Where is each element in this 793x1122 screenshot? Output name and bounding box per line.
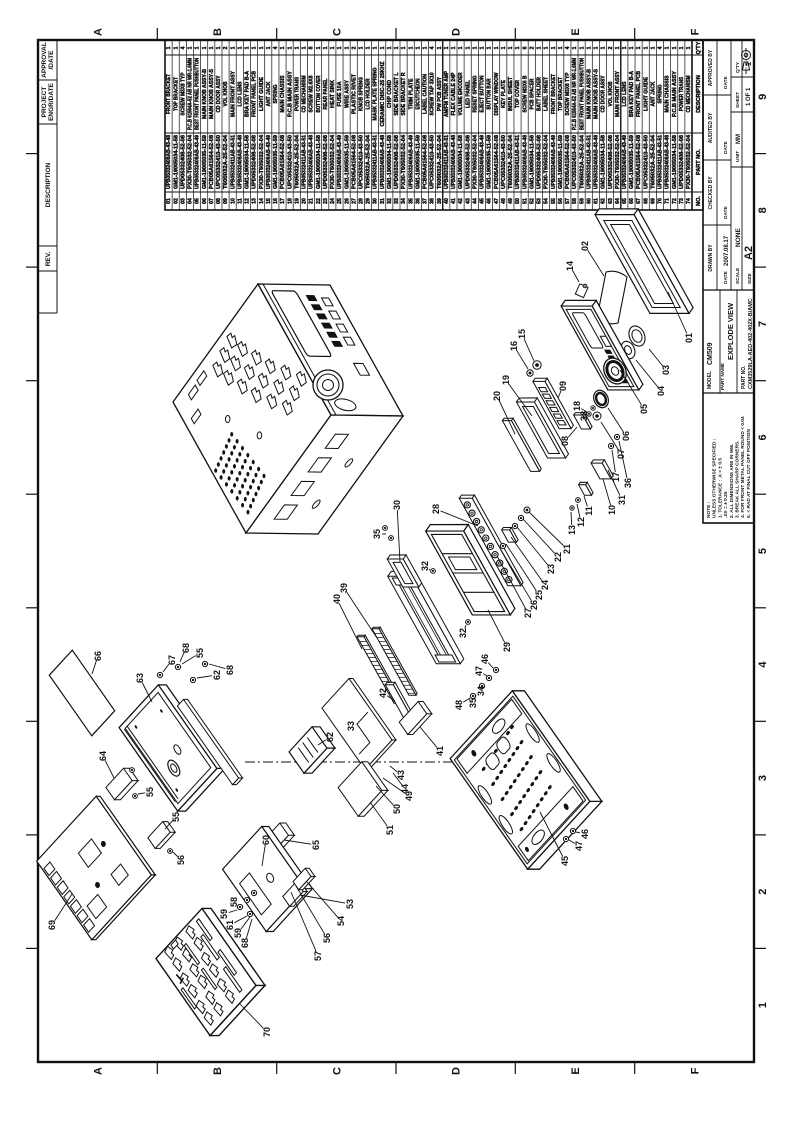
svg-text:64: 64 <box>98 751 108 761</box>
svg-text:TOP BRACKET: TOP BRACKET <box>173 76 179 111</box>
svg-text:GM1-19005034-11-58: GM1-19005034-11-58 <box>672 135 678 189</box>
svg-text:57: 57 <box>313 951 323 961</box>
svg-text:PW PCB ASSY: PW PCB ASSY <box>437 76 443 111</box>
svg-text:A: A <box>93 1067 105 1075</box>
svg-text:12: 12 <box>245 198 251 204</box>
svg-text:SCALE: SCALE <box>735 267 741 284</box>
svg-text:21: 21 <box>562 544 572 554</box>
svg-text:UPB05332408AB-43-48: UPB05332408AB-43-48 <box>380 135 386 189</box>
svg-text:A2: A2 <box>743 246 755 260</box>
svg-text:GM1-19005034-11-58: GM1-19005034-11-58 <box>387 135 393 189</box>
svg-text:LABEL CAUTION: LABEL CAUTION <box>423 74 429 114</box>
svg-text:UPB05332411AB-43-51: UPB05332411AB-43-51 <box>373 135 379 189</box>
svg-text:1. TOLERANCE : .X = ± 0.5: 1. TOLERANCE : .X = ± 0.5 <box>717 458 723 518</box>
svg-text:36: 36 <box>623 478 633 488</box>
svg-text:UPB05332411AB-43-51: UPB05332411AB-43-51 <box>444 135 450 189</box>
svg-text:UPB05332408AB-43-48: UPB05332408AB-43-48 <box>451 135 457 189</box>
svg-text:32: 32 <box>387 198 393 204</box>
svg-text:08: 08 <box>216 198 222 204</box>
svg-text:73: 73 <box>679 198 685 204</box>
svg-text:GM1-19005034-11-58: GM1-19005034-11-58 <box>173 135 179 189</box>
svg-text:UPB05332409AB-43-49: UPB05332409AB-43-49 <box>337 135 343 189</box>
svg-text:1: 1 <box>437 46 443 49</box>
svg-text:UNLESS OTHERWISE SPECIFIED :: UNLESS OTHERWISE SPECIFIED : <box>712 438 718 518</box>
svg-text:UPB05332411AB-43-51: UPB05332411AB-43-51 <box>302 135 308 189</box>
svg-text:16: 16 <box>509 341 519 351</box>
svg-text:UPC05332410-43-50: UPC05332410-43-50 <box>572 135 578 189</box>
svg-text:13: 13 <box>567 525 577 535</box>
svg-text:REV.: REV. <box>45 252 52 267</box>
svg-text:UPB05332408AB-43-48: UPB05332408AB-43-48 <box>309 135 315 189</box>
svg-text:DESCRIPTION: DESCRIPTION <box>45 162 52 207</box>
svg-text:2: 2 <box>757 889 769 895</box>
svg-text:P.C.B MAIN ASSY: P.C.B MAIN ASSY <box>287 70 293 117</box>
svg-text:UPB05332408AB-43-48: UPB05332408AB-43-48 <box>665 135 671 189</box>
svg-text:49: 49 <box>508 198 514 204</box>
svg-text:T605032A-25-52-04: T605032A-25-52-04 <box>651 135 657 189</box>
svg-text:2: 2 <box>223 46 229 49</box>
svg-text:72: 72 <box>672 198 678 204</box>
svg-text:UPB05332411AB-43-51: UPB05332411AB-43-51 <box>515 135 521 189</box>
svg-text:1: 1 <box>480 46 486 49</box>
svg-text:LED PANEL: LED PANEL <box>465 80 471 108</box>
svg-text:43: 43 <box>396 770 406 780</box>
svg-text:4: 4 <box>658 46 664 49</box>
svg-text:55: 55 <box>171 812 181 822</box>
svg-text:MAIN CHASSIS: MAIN CHASSIS <box>665 75 671 113</box>
svg-text:1: 1 <box>209 46 215 49</box>
svg-text:LABEL SHEET: LABEL SHEET <box>544 76 550 111</box>
svg-text:1: 1 <box>665 46 671 49</box>
svg-text:10: 10 <box>230 198 236 204</box>
svg-text:18: 18 <box>572 401 582 411</box>
svg-text:59: 59 <box>579 198 585 204</box>
svg-text:5. < RAD AT FINAL CUT OFF POSI: 5. < RAD AT FINAL CUT OFF POSITION <box>746 429 752 518</box>
svg-text:VOL KNOB: VOL KNOB <box>608 81 614 106</box>
svg-text:UPB05332409AB-43-49: UPB05332409AB-43-49 <box>551 135 557 189</box>
svg-text:LIGHT GUIDE: LIGHT GUIDE <box>259 76 265 111</box>
svg-text:PX30-T605032-52-04: PX30-T605032-52-04 <box>615 135 621 189</box>
svg-text:VOLUME ENCODER: VOLUME ENCODER <box>458 72 464 115</box>
svg-text:1: 1 <box>679 46 685 49</box>
svg-text:53: 53 <box>537 198 543 204</box>
svg-text:68: 68 <box>225 665 235 675</box>
svg-text:UPC05332410-43-50: UPC05332410-43-50 <box>501 135 507 189</box>
svg-text:/DATE: /DATE <box>48 50 55 70</box>
svg-text:KNOB SPRING: KNOB SPRING <box>359 77 365 111</box>
svg-text:36: 36 <box>416 198 422 204</box>
svg-text:04: 04 <box>656 386 666 396</box>
svg-text:UPB05332409AB-43-49: UPB05332409AB-43-49 <box>480 135 486 189</box>
svg-text:7: 7 <box>757 321 769 327</box>
svg-text:PROJECT: PROJECT <box>41 87 48 118</box>
svg-text:62: 62 <box>601 198 607 204</box>
svg-text:GM1-19005034-11-58: GM1-19005034-11-58 <box>316 135 322 189</box>
svg-text:19: 19 <box>294 198 300 204</box>
svg-text:UPD05332408-52-08: UPD05332408-52-08 <box>679 135 685 189</box>
svg-text:CD DOOR ASSY: CD DOOR ASSY <box>216 75 222 113</box>
svg-text:42: 42 <box>378 688 388 698</box>
svg-text:UPD05332408-52-08: UPD05332408-52-08 <box>608 135 614 189</box>
svg-text:54: 54 <box>544 198 550 204</box>
svg-text:PX30-T605032-52-04: PX30-T605032-52-04 <box>330 135 336 189</box>
svg-text:1: 1 <box>287 46 293 49</box>
svg-text:GM1-19005035-11-59: GM1-19005035-11-59 <box>202 135 208 189</box>
svg-text:1: 1 <box>508 46 514 49</box>
svg-text:30: 30 <box>373 198 379 204</box>
svg-text:1: 1 <box>380 46 386 49</box>
svg-text:SCREW M3X6 B: SCREW M3X6 B <box>522 75 528 112</box>
svg-text:APPROVAL: APPROVAL <box>41 42 48 78</box>
svg-text:PCB05A61564-52-08: PCB05A61564-52-08 <box>351 135 357 189</box>
svg-text:SCREW M2.6X8: SCREW M2.6X8 <box>309 75 315 112</box>
svg-text:63: 63 <box>135 673 145 683</box>
svg-text:PART NAME: PART NAME <box>720 363 725 390</box>
svg-text:56: 56 <box>558 198 564 204</box>
svg-text:PX30-T605032-52-04: PX30-T605032-52-04 <box>686 135 692 189</box>
svg-text:59: 59 <box>233 928 243 938</box>
svg-text:1: 1 <box>615 46 621 49</box>
svg-text:TOP BRACKET: TOP BRACKET <box>558 76 564 111</box>
svg-text:1: 1 <box>294 46 300 49</box>
svg-text:EJECT BUTTON: EJECT BUTTON <box>480 75 486 112</box>
svg-text:GM1-19005034-11-58: GM1-19005034-11-58 <box>529 135 535 189</box>
svg-text:CXM3529LA-AED-402-402X-B/AMC: CXM3529LA-AED-402-402X-B/AMC <box>748 298 754 389</box>
svg-text:67: 67 <box>636 198 642 204</box>
svg-text:02: 02 <box>580 241 590 251</box>
svg-text:F: F <box>689 28 701 35</box>
svg-text:A: A <box>93 28 105 36</box>
svg-text:T605032A-25-52-04: T605032A-25-52-04 <box>508 135 514 189</box>
svg-text:ANT JACK: ANT JACK <box>266 81 272 106</box>
svg-text:51: 51 <box>522 198 528 204</box>
svg-text:ANT JACK: ANT JACK <box>651 81 657 106</box>
svg-text:C: C <box>331 1067 343 1075</box>
svg-text:45: 45 <box>480 198 486 204</box>
svg-text:1: 1 <box>458 46 464 49</box>
svg-text:1: 1 <box>302 46 308 49</box>
svg-text:1: 1 <box>465 46 471 49</box>
svg-text:BOTTOM COVER: BOTTOM COVER <box>316 75 322 112</box>
svg-text:1: 1 <box>202 46 208 49</box>
svg-text:48: 48 <box>454 700 464 710</box>
svg-text:3: 3 <box>757 775 769 781</box>
svg-text:P.C.B 61564A-52 AB NR WR-1.6MM: P.C.B 61564A-52 AB NR WR-1.6MM <box>572 58 578 130</box>
svg-text:1: 1 <box>387 46 393 49</box>
svg-text:15: 15 <box>266 198 272 204</box>
svg-text:11: 11 <box>584 506 594 516</box>
svg-text:65: 65 <box>622 198 628 204</box>
svg-text:1: 1 <box>501 46 507 49</box>
svg-text:1: 1 <box>259 46 265 49</box>
svg-text:FRONT PANEL PCB: FRONT PANEL PCB <box>252 71 258 117</box>
svg-text:22: 22 <box>316 198 322 204</box>
svg-text:GM1-19005035-11-59: GM1-19005035-11-59 <box>629 135 635 189</box>
svg-text:MM: MM <box>736 134 742 144</box>
svg-text:09: 09 <box>223 198 229 204</box>
svg-text:SCREW M3X8 TYP: SCREW M3X8 TYP <box>565 72 571 116</box>
svg-text:1: 1 <box>472 46 478 49</box>
svg-text:UPC05332410-43-50: UPC05332410-43-50 <box>430 135 436 189</box>
svg-text:DATE: DATE <box>723 75 729 89</box>
svg-text:48: 48 <box>501 198 507 204</box>
svg-text:1: 1 <box>316 46 322 49</box>
svg-text:UPD05332408-52-08: UPD05332408-52-08 <box>537 135 543 189</box>
svg-text:52: 52 <box>529 198 535 204</box>
svg-text:C: C <box>331 28 343 36</box>
svg-text:1: 1 <box>515 46 521 49</box>
svg-text:1: 1 <box>188 46 194 49</box>
svg-text:2. ALL DIMENSIONS ARE IN MM.: 2. ALL DIMENSIONS ARE IN MM. <box>729 444 735 518</box>
svg-text:F: F <box>689 1067 701 1074</box>
svg-text:MASK PLATE SPRING: MASK PLATE SPRING <box>373 67 379 120</box>
svg-text:27: 27 <box>523 608 533 618</box>
svg-text:ENGR/DATE: ENGR/DATE <box>48 82 55 120</box>
svg-text:40: 40 <box>444 198 450 204</box>
svg-text:VOL KNOB: VOL KNOB <box>223 81 229 106</box>
svg-text:30: 30 <box>392 500 402 510</box>
svg-text:1: 1 <box>408 46 414 49</box>
svg-text:70: 70 <box>658 198 664 204</box>
svg-text:T605032A-25-52-04: T605032A-25-52-04 <box>366 135 372 189</box>
svg-text:1: 1 <box>757 1002 769 1008</box>
svg-text:03: 03 <box>181 198 187 204</box>
svg-text:1: 1 <box>216 46 222 49</box>
svg-text:GM1-19005035-11-59: GM1-19005035-11-59 <box>344 135 350 189</box>
svg-text:25: 25 <box>337 198 343 204</box>
svg-text:2: 2 <box>529 46 535 49</box>
svg-text:71: 71 <box>665 198 671 204</box>
svg-text:28: 28 <box>359 198 365 204</box>
svg-text:UPB05332409AB-43-49: UPB05332409AB-43-49 <box>408 135 414 189</box>
svg-text:20: 20 <box>492 391 502 401</box>
svg-text:70: 70 <box>262 1027 272 1037</box>
svg-text:PART NO.: PART NO. <box>741 365 747 389</box>
svg-text:2: 2 <box>351 46 357 49</box>
svg-text:E: E <box>570 1067 582 1074</box>
svg-text:12: 12 <box>576 517 586 527</box>
svg-text:GM1-19005035-11-59: GM1-19005035-11-59 <box>273 135 279 189</box>
svg-text:07: 07 <box>209 198 215 204</box>
svg-text:PCB05A61564-52-08: PCB05A61564-52-08 <box>494 135 500 189</box>
svg-text:03: 03 <box>661 365 671 375</box>
svg-text:37: 37 <box>423 198 429 204</box>
svg-text:SPRING: SPRING <box>658 84 664 103</box>
svg-text:51: 51 <box>385 825 395 835</box>
svg-text:RESET SPRING: RESET SPRING <box>472 75 478 112</box>
svg-text:31: 31 <box>617 495 627 505</box>
svg-text:6: 6 <box>522 46 528 49</box>
svg-text:MAIN FRONT ASSY: MAIN FRONT ASSY <box>230 70 236 117</box>
svg-text:B: B <box>212 28 224 36</box>
svg-text:PART NO.: PART NO. <box>696 149 702 175</box>
svg-text:AM/FM TUNER AMP: AM/FM TUNER AMP <box>444 70 450 117</box>
svg-text:1: 1 <box>337 46 343 49</box>
svg-text:39: 39 <box>339 583 349 593</box>
svg-text:UPB05332411AB-43-51: UPB05332411AB-43-51 <box>658 135 664 189</box>
svg-text:69: 69 <box>47 920 57 930</box>
svg-text:57: 57 <box>565 198 571 204</box>
svg-text:LCD LENS: LCD LENS <box>237 81 243 107</box>
svg-text:23: 23 <box>323 198 329 204</box>
svg-text:DESCRIPTION: DESCRIPTION <box>696 75 702 113</box>
svg-text:28: 28 <box>431 504 441 514</box>
svg-text:38: 38 <box>579 411 589 421</box>
svg-text:1: 1 <box>237 46 243 49</box>
svg-text:4: 4 <box>757 661 769 668</box>
svg-text:69: 69 <box>651 198 657 204</box>
svg-text:15: 15 <box>517 329 527 339</box>
svg-text:13: 13 <box>252 198 258 204</box>
svg-text:38: 38 <box>430 198 436 204</box>
svg-text:DATE: DATE <box>723 140 729 154</box>
svg-text:1: 1 <box>173 46 179 49</box>
svg-text:17: 17 <box>280 198 286 204</box>
svg-text:39: 39 <box>437 198 443 204</box>
svg-text:UPB05332409AB-43-49: UPB05332409AB-43-49 <box>266 135 272 189</box>
svg-text:1: 1 <box>444 46 450 49</box>
svg-text:SIZE: SIZE <box>747 273 753 284</box>
svg-text:UPB05332409AB-43-49: UPB05332409AB-43-49 <box>195 135 201 189</box>
svg-text:1: 1 <box>629 46 635 49</box>
svg-text:BATT HOLDER: BATT HOLDER <box>537 77 543 111</box>
svg-text:32: 32 <box>420 561 430 571</box>
svg-text:FRONT BRACKET: FRONT BRACKET <box>166 73 172 114</box>
svg-text:62: 62 <box>212 670 222 680</box>
svg-text:1: 1 <box>537 46 543 49</box>
svg-text:D: D <box>451 28 463 36</box>
svg-text:1: 1 <box>373 46 379 49</box>
svg-text:1: 1 <box>686 46 692 49</box>
svg-text:DRAWN BY: DRAWN BY <box>708 244 714 272</box>
svg-text:41: 41 <box>435 746 445 756</box>
svg-text:18: 18 <box>287 198 293 204</box>
svg-text:CD DOOR ASSY: CD DOOR ASSY <box>601 75 607 113</box>
svg-text:1: 1 <box>230 46 236 49</box>
svg-text:5: 5 <box>757 548 769 554</box>
svg-text:POWER TRANS: POWER TRANS <box>294 76 300 111</box>
svg-text:KEY PLATE: KEY PLATE <box>501 79 507 108</box>
svg-text:55: 55 <box>551 198 557 204</box>
svg-text:66: 66 <box>629 198 635 204</box>
svg-text:55: 55 <box>145 787 155 797</box>
svg-text:32: 32 <box>458 628 468 638</box>
svg-text:PCB05A61564-52-08: PCB05A61564-52-08 <box>280 135 286 189</box>
svg-text:42: 42 <box>458 198 464 204</box>
svg-text:14: 14 <box>565 261 575 271</box>
svg-text:47: 47 <box>494 198 500 204</box>
svg-text:27: 27 <box>351 198 357 204</box>
svg-text:WIRE ASSY: WIRE ASSY <box>344 79 350 108</box>
svg-text:UPD05332408-52-08: UPD05332408-52-08 <box>252 135 258 189</box>
svg-text:1: 1 <box>643 46 649 49</box>
svg-text:PX30-T605032-52-04: PX30-T605032-52-04 <box>188 135 194 189</box>
svg-text:UPD05332408-52-08: UPD05332408-52-08 <box>394 135 400 189</box>
svg-text:GM1-19005035-11-59: GM1-19005035-11-59 <box>558 135 564 189</box>
svg-text:3. BREAK ALL SHARP CORNERS.: 3. BREAK ALL SHARP CORNERS. <box>735 441 741 518</box>
svg-text:6: 6 <box>757 434 769 440</box>
svg-text:9: 9 <box>757 94 769 100</box>
svg-text:T605032A-25-52-04: T605032A-25-52-04 <box>579 135 585 189</box>
svg-text:UPB05332409AB-43-49: UPB05332409AB-43-49 <box>622 135 628 189</box>
svg-text:01: 01 <box>166 198 172 204</box>
svg-text:PX30-T605032-52-04: PX30-T605032-52-04 <box>401 135 407 189</box>
svg-text:SIDE BRACKET L: SIDE BRACKET L <box>394 73 400 116</box>
svg-text:1: 1 <box>672 46 678 49</box>
svg-text:1: 1 <box>544 46 550 49</box>
svg-text:1: 1 <box>594 46 600 49</box>
svg-text:68: 68 <box>643 198 649 204</box>
svg-text:NOTE :: NOTE : <box>706 501 712 518</box>
svg-text:CD MECHANISM: CD MECHANISM <box>302 76 308 113</box>
svg-text:PX30-T605032-52-04: PX30-T605032-52-04 <box>472 135 478 189</box>
svg-text:1: 1 <box>451 46 457 49</box>
svg-text:21: 21 <box>309 198 315 204</box>
svg-text:B: B <box>212 1067 224 1075</box>
svg-text:1: 1 <box>416 46 422 49</box>
svg-text:04: 04 <box>188 198 194 204</box>
svg-text:INSUL SHEET: INSUL SHEET <box>508 76 514 111</box>
svg-text:02: 02 <box>173 198 179 204</box>
svg-text:1: 1 <box>394 46 400 49</box>
svg-text:CHECKED BY: CHECKED BY <box>708 176 714 210</box>
svg-text:GM1-19005034-11-58: GM1-19005034-11-58 <box>245 135 251 189</box>
svg-text:1: 1 <box>494 46 500 49</box>
svg-text:05: 05 <box>195 198 201 204</box>
svg-text:EXPLODE VIEW: EXPLODE VIEW <box>726 302 735 360</box>
svg-text:P.C.B 61564A-52 AB NR WR-1.6MM: P.C.B 61564A-52 AB NR WR-1.6MM <box>188 58 194 130</box>
svg-text:BRA KEY PAD B-A: BRA KEY PAD B-A <box>245 71 251 117</box>
svg-text:GM1-19005035-11-59: GM1-19005035-11-59 <box>416 135 422 189</box>
svg-text:1: 1 <box>651 46 657 49</box>
svg-text:NONE: NONE <box>735 228 742 247</box>
svg-text:46: 46 <box>580 829 590 839</box>
svg-text:1: 1 <box>359 46 365 49</box>
svg-text:61: 61 <box>594 198 600 204</box>
svg-text:1: 1 <box>423 46 429 49</box>
svg-text:UPB05332411AB-43-51: UPB05332411AB-43-51 <box>230 135 236 189</box>
svg-text:MAIN KNOB ASSY-S: MAIN KNOB ASSY-S <box>594 68 600 119</box>
svg-text:8: 8 <box>309 46 315 49</box>
svg-text:1: 1 <box>266 46 272 49</box>
svg-text:1: 1 <box>551 46 557 49</box>
svg-text:UPB05332408AB-43-48: UPB05332408AB-43-48 <box>522 135 528 189</box>
svg-text:35: 35 <box>468 698 478 708</box>
svg-text:2007.08.17: 2007.08.17 <box>724 235 730 266</box>
svg-text:SCREW TAP 3X10: SCREW TAP 3X10 <box>430 72 436 115</box>
svg-text:33: 33 <box>394 198 400 204</box>
svg-text:50: 50 <box>392 804 402 814</box>
svg-text:33: 33 <box>346 721 356 731</box>
svg-text:1: 1 <box>245 46 251 49</box>
svg-text:01: 01 <box>684 333 694 343</box>
svg-text:BEST FRONT PANEL PUSHBUTTON: BEST FRONT PANEL PUSHBUTTON <box>195 58 201 130</box>
svg-text:BUTTON BAR: BUTTON BAR <box>487 78 493 109</box>
svg-text:65: 65 <box>311 840 321 850</box>
svg-text:1: 1 <box>252 46 258 49</box>
svg-text:29: 29 <box>366 198 372 204</box>
svg-text:31: 31 <box>380 198 386 204</box>
svg-text:4: 4 <box>273 46 279 49</box>
svg-text:MAIN KNOB ASSY-B: MAIN KNOB ASSY-B <box>202 69 208 119</box>
svg-text:50: 50 <box>515 198 521 204</box>
svg-text:.XX = ± 0.25: .XX = ± 0.25 <box>723 491 729 518</box>
svg-text:1: 1 <box>366 46 372 49</box>
svg-text:APPROVED BY: APPROVED BY <box>708 49 714 86</box>
svg-text:1: 1 <box>166 46 172 49</box>
svg-text:TOP COVER: TOP COVER <box>515 80 521 108</box>
svg-text:MAIN FRONT ASSY: MAIN FRONT ASSY <box>615 70 621 117</box>
